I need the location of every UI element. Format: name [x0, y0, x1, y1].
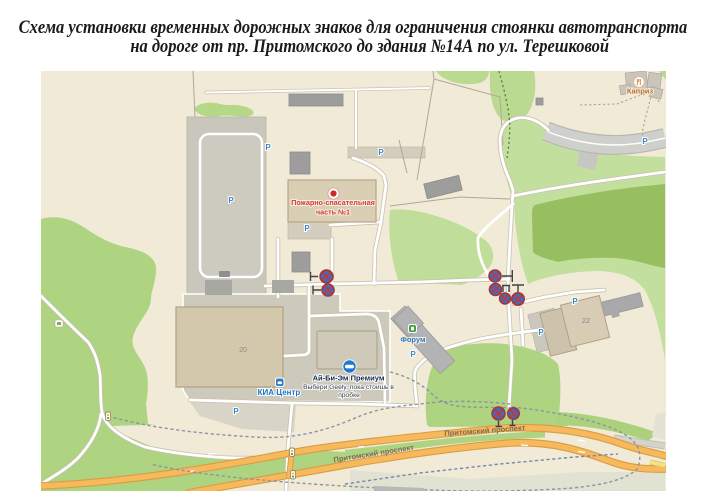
svg-text:P: P [304, 224, 310, 233]
svg-text:P: P [228, 196, 234, 205]
svg-text:22: 22 [582, 318, 590, 325]
svg-text:P: P [378, 148, 384, 157]
svg-text:Пожарно-спасательная: Пожарно-спасательная [291, 198, 375, 207]
svg-text:20: 20 [239, 347, 247, 354]
svg-text:P: P [572, 297, 578, 306]
svg-text:P: P [642, 137, 648, 146]
svg-text:Форум: Форум [400, 335, 426, 344]
svg-text:P: P [410, 350, 416, 359]
svg-text:Каприз: Каприз [627, 87, 654, 96]
svg-text:P: P [265, 143, 271, 152]
svg-text:часть №1: часть №1 [316, 208, 350, 217]
svg-text:P: P [233, 407, 239, 416]
svg-text:Ай-Би-Эм Премиум: Ай-Би-Эм Премиум [313, 374, 385, 383]
svg-text:P: P [538, 328, 544, 337]
svg-text:пробке: пробке [338, 391, 360, 399]
svg-text:Выбери Geely, пока стоишь в: Выбери Geely, пока стоишь в [303, 383, 394, 391]
svg-text:КИА Центр: КИА Центр [258, 388, 301, 397]
